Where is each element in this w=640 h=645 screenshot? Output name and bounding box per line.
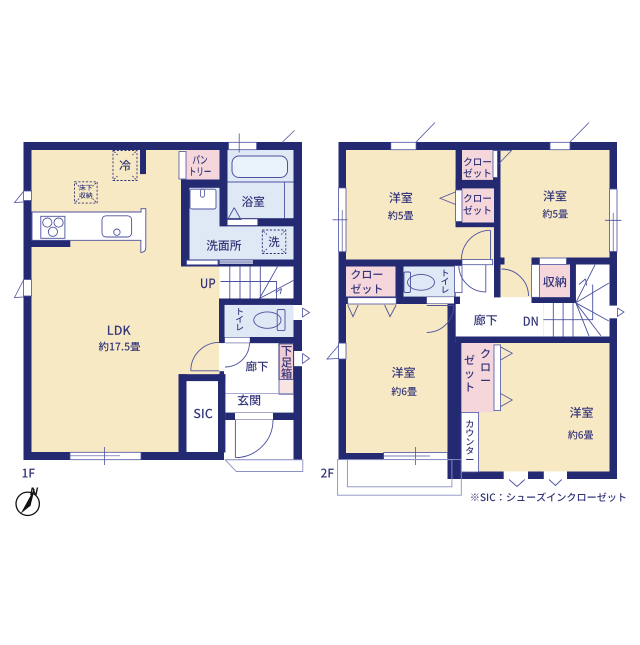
svg-text:N: N (30, 486, 39, 498)
